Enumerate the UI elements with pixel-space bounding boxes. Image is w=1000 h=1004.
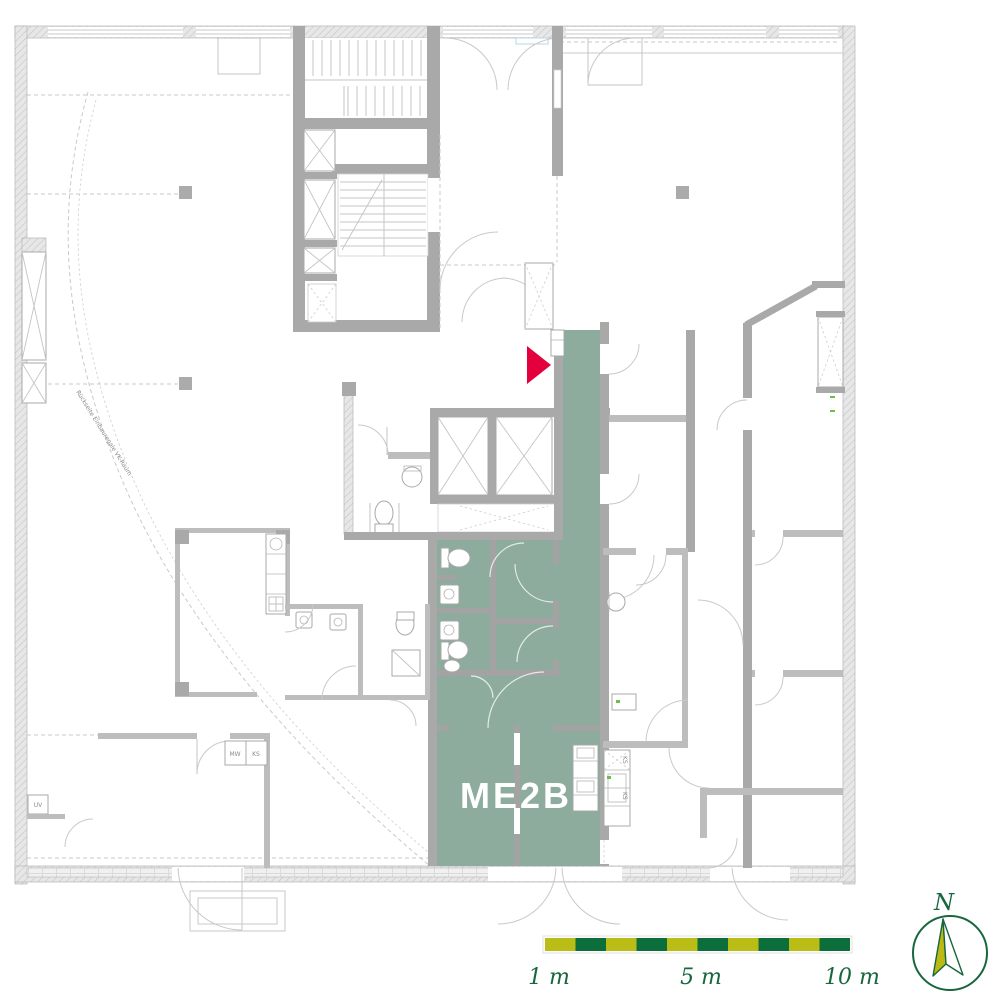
toilet-icon	[441, 548, 470, 568]
elevator-icon	[816, 311, 845, 393]
unit-entry-door	[551, 330, 564, 356]
stairs-lower	[338, 174, 428, 256]
fixture-box	[612, 694, 636, 710]
kitchen-icon	[266, 534, 286, 614]
scale-label-10m: 10 m	[824, 965, 880, 990]
north-compass: N	[913, 890, 987, 990]
uv-label: UV	[34, 802, 43, 809]
appliance-mw: MW	[225, 741, 246, 765]
kitchen-ks-label: KS	[621, 792, 628, 800]
floorplan-page: Rückseite Einbauregale VK-Raum	[0, 0, 1000, 1004]
scale-bar-segments	[545, 938, 850, 951]
elevator-icon	[304, 130, 336, 322]
left-wall-shafts	[22, 238, 46, 403]
unit-me2b: ME2B	[428, 322, 609, 866]
unit-label: ME2B	[460, 775, 572, 816]
scale-label-5m: 5 m	[680, 965, 722, 990]
top-windows	[48, 27, 843, 53]
uv-room: UV	[27, 735, 98, 847]
appliance-ks: KS	[246, 741, 267, 765]
kitchen-icon	[573, 745, 598, 811]
shower-icon	[392, 650, 420, 676]
column	[676, 186, 689, 199]
column	[179, 377, 192, 390]
ks-label: KS	[252, 751, 260, 758]
sink-icon	[440, 585, 459, 604]
stairs-upper	[305, 38, 427, 118]
kitchen-icon: KS KS	[604, 750, 630, 826]
mw-label: MW	[229, 751, 240, 758]
right-rooms: KS KS	[600, 281, 845, 868]
scale-bar: 1 m 5 m 10 m	[528, 936, 880, 990]
sink-icon	[607, 592, 625, 612]
kitchen-ks-label: KS	[621, 756, 628, 764]
toilet-icon	[396, 612, 414, 635]
toilet-icon	[370, 501, 399, 533]
sink-icon	[440, 621, 459, 640]
wc-room	[342, 382, 430, 534]
sink-icon	[402, 466, 422, 487]
scale-label-1m: 1 m	[528, 965, 570, 990]
floorplan-canvas: Rückseite Einbauregale VK-Raum	[0, 0, 1000, 1004]
north-label: N	[933, 890, 955, 916]
sink-icon	[296, 612, 312, 628]
column	[179, 186, 192, 199]
entrance-arrow-icon	[527, 346, 551, 384]
site-note-label: Rückseite Einbauregale VK-Raum	[74, 389, 133, 477]
core-stairs-elevators	[293, 26, 689, 334]
bottom-left-rooms: MW KS UV	[27, 528, 430, 868]
sink-icon	[330, 614, 346, 630]
